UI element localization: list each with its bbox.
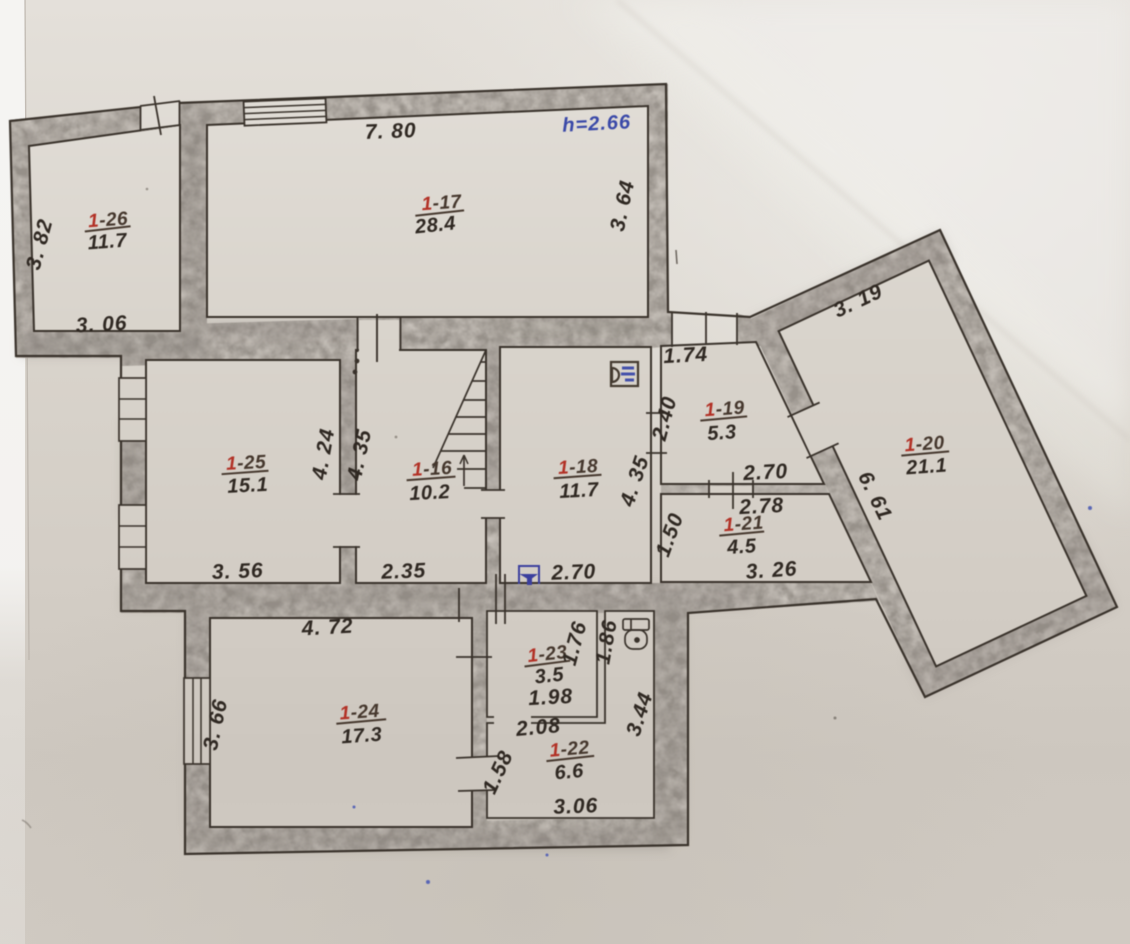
svg-text:1.98: 1.98 [528, 685, 574, 710]
svg-text:3. 26: 3. 26 [745, 557, 798, 584]
svg-text:7. 80: 7. 80 [365, 119, 417, 144]
svg-text:10.2: 10.2 [409, 481, 451, 505]
svg-text:2.08: 2.08 [514, 714, 562, 741]
svg-text:11.7: 11.7 [559, 479, 600, 503]
svg-text:15.1: 15.1 [227, 474, 269, 498]
svg-text:21.1: 21.1 [904, 455, 947, 480]
svg-text:3.06: 3.06 [553, 794, 599, 819]
svg-text:3. 06: 3. 06 [75, 312, 128, 338]
svg-text:2.70: 2.70 [550, 560, 597, 585]
svg-text:11.7: 11.7 [87, 230, 128, 255]
svg-text:3. 56: 3. 56 [212, 559, 264, 584]
svg-text:2.70: 2.70 [742, 460, 789, 485]
svg-text:4. 72: 4. 72 [300, 615, 354, 641]
svg-text:28.4: 28.4 [413, 212, 457, 238]
svg-text:5.3: 5.3 [707, 421, 738, 445]
svg-text:17.3: 17.3 [341, 724, 383, 749]
svg-text:1.74: 1.74 [663, 343, 709, 368]
svg-text:h=2.66: h=2.66 [562, 111, 632, 137]
svg-text:2.35: 2.35 [380, 559, 427, 584]
svg-text:4.5: 4.5 [725, 535, 757, 559]
svg-text:6.6: 6.6 [554, 760, 585, 785]
